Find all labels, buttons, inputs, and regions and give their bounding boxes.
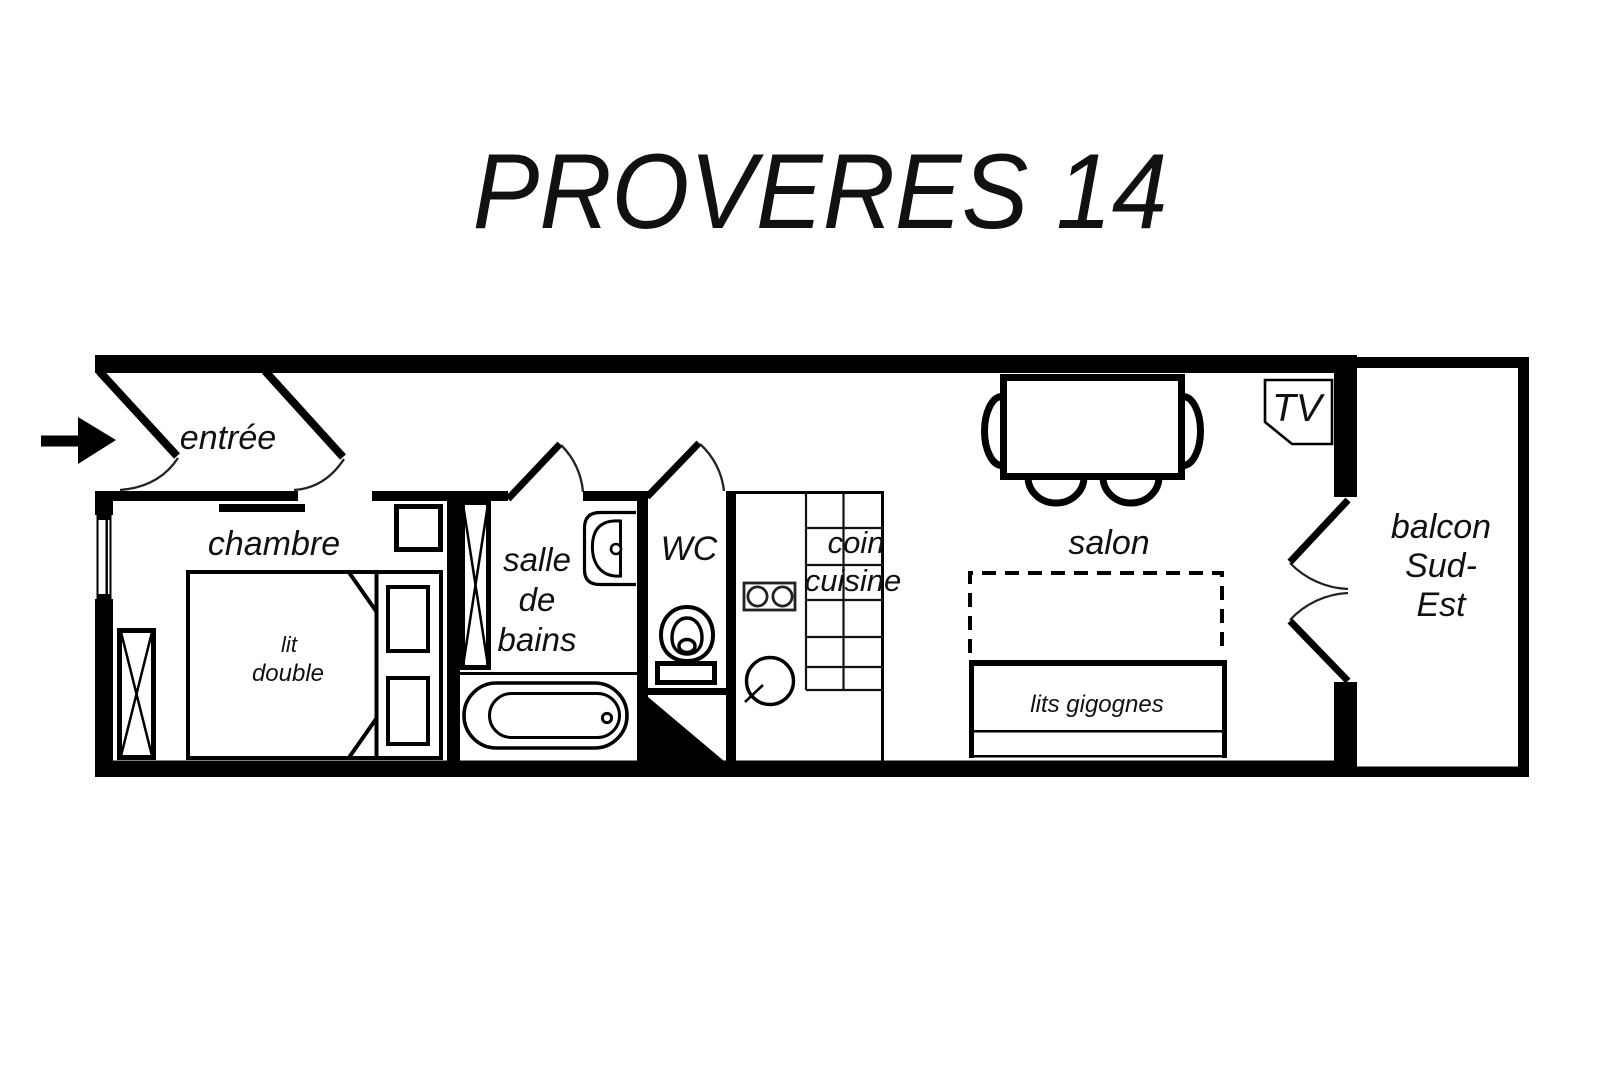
- svg-text:de: de: [519, 581, 556, 618]
- svg-text:entrée: entrée: [180, 419, 276, 457]
- svg-text:balcon: balcon: [1391, 508, 1491, 546]
- svg-text:bains: bains: [498, 621, 577, 658]
- svg-text:cuisine: cuisine: [805, 563, 902, 598]
- svg-text:lit: lit: [281, 632, 298, 657]
- svg-text:lits gigognes: lits gigognes: [1030, 691, 1163, 718]
- svg-text:coin: coin: [828, 525, 885, 560]
- svg-text:salon: salon: [1068, 524, 1149, 562]
- svg-text:Sud-: Sud-: [1405, 547, 1477, 585]
- svg-text:TV: TV: [1272, 387, 1326, 430]
- svg-text:Est: Est: [1416, 586, 1467, 624]
- svg-text:WC: WC: [661, 530, 718, 568]
- svg-text:salle: salle: [503, 541, 571, 578]
- svg-text:PROVERES 14: PROVERES 14: [473, 131, 1168, 251]
- svg-text:double: double: [252, 660, 324, 687]
- svg-text:chambre: chambre: [208, 525, 340, 563]
